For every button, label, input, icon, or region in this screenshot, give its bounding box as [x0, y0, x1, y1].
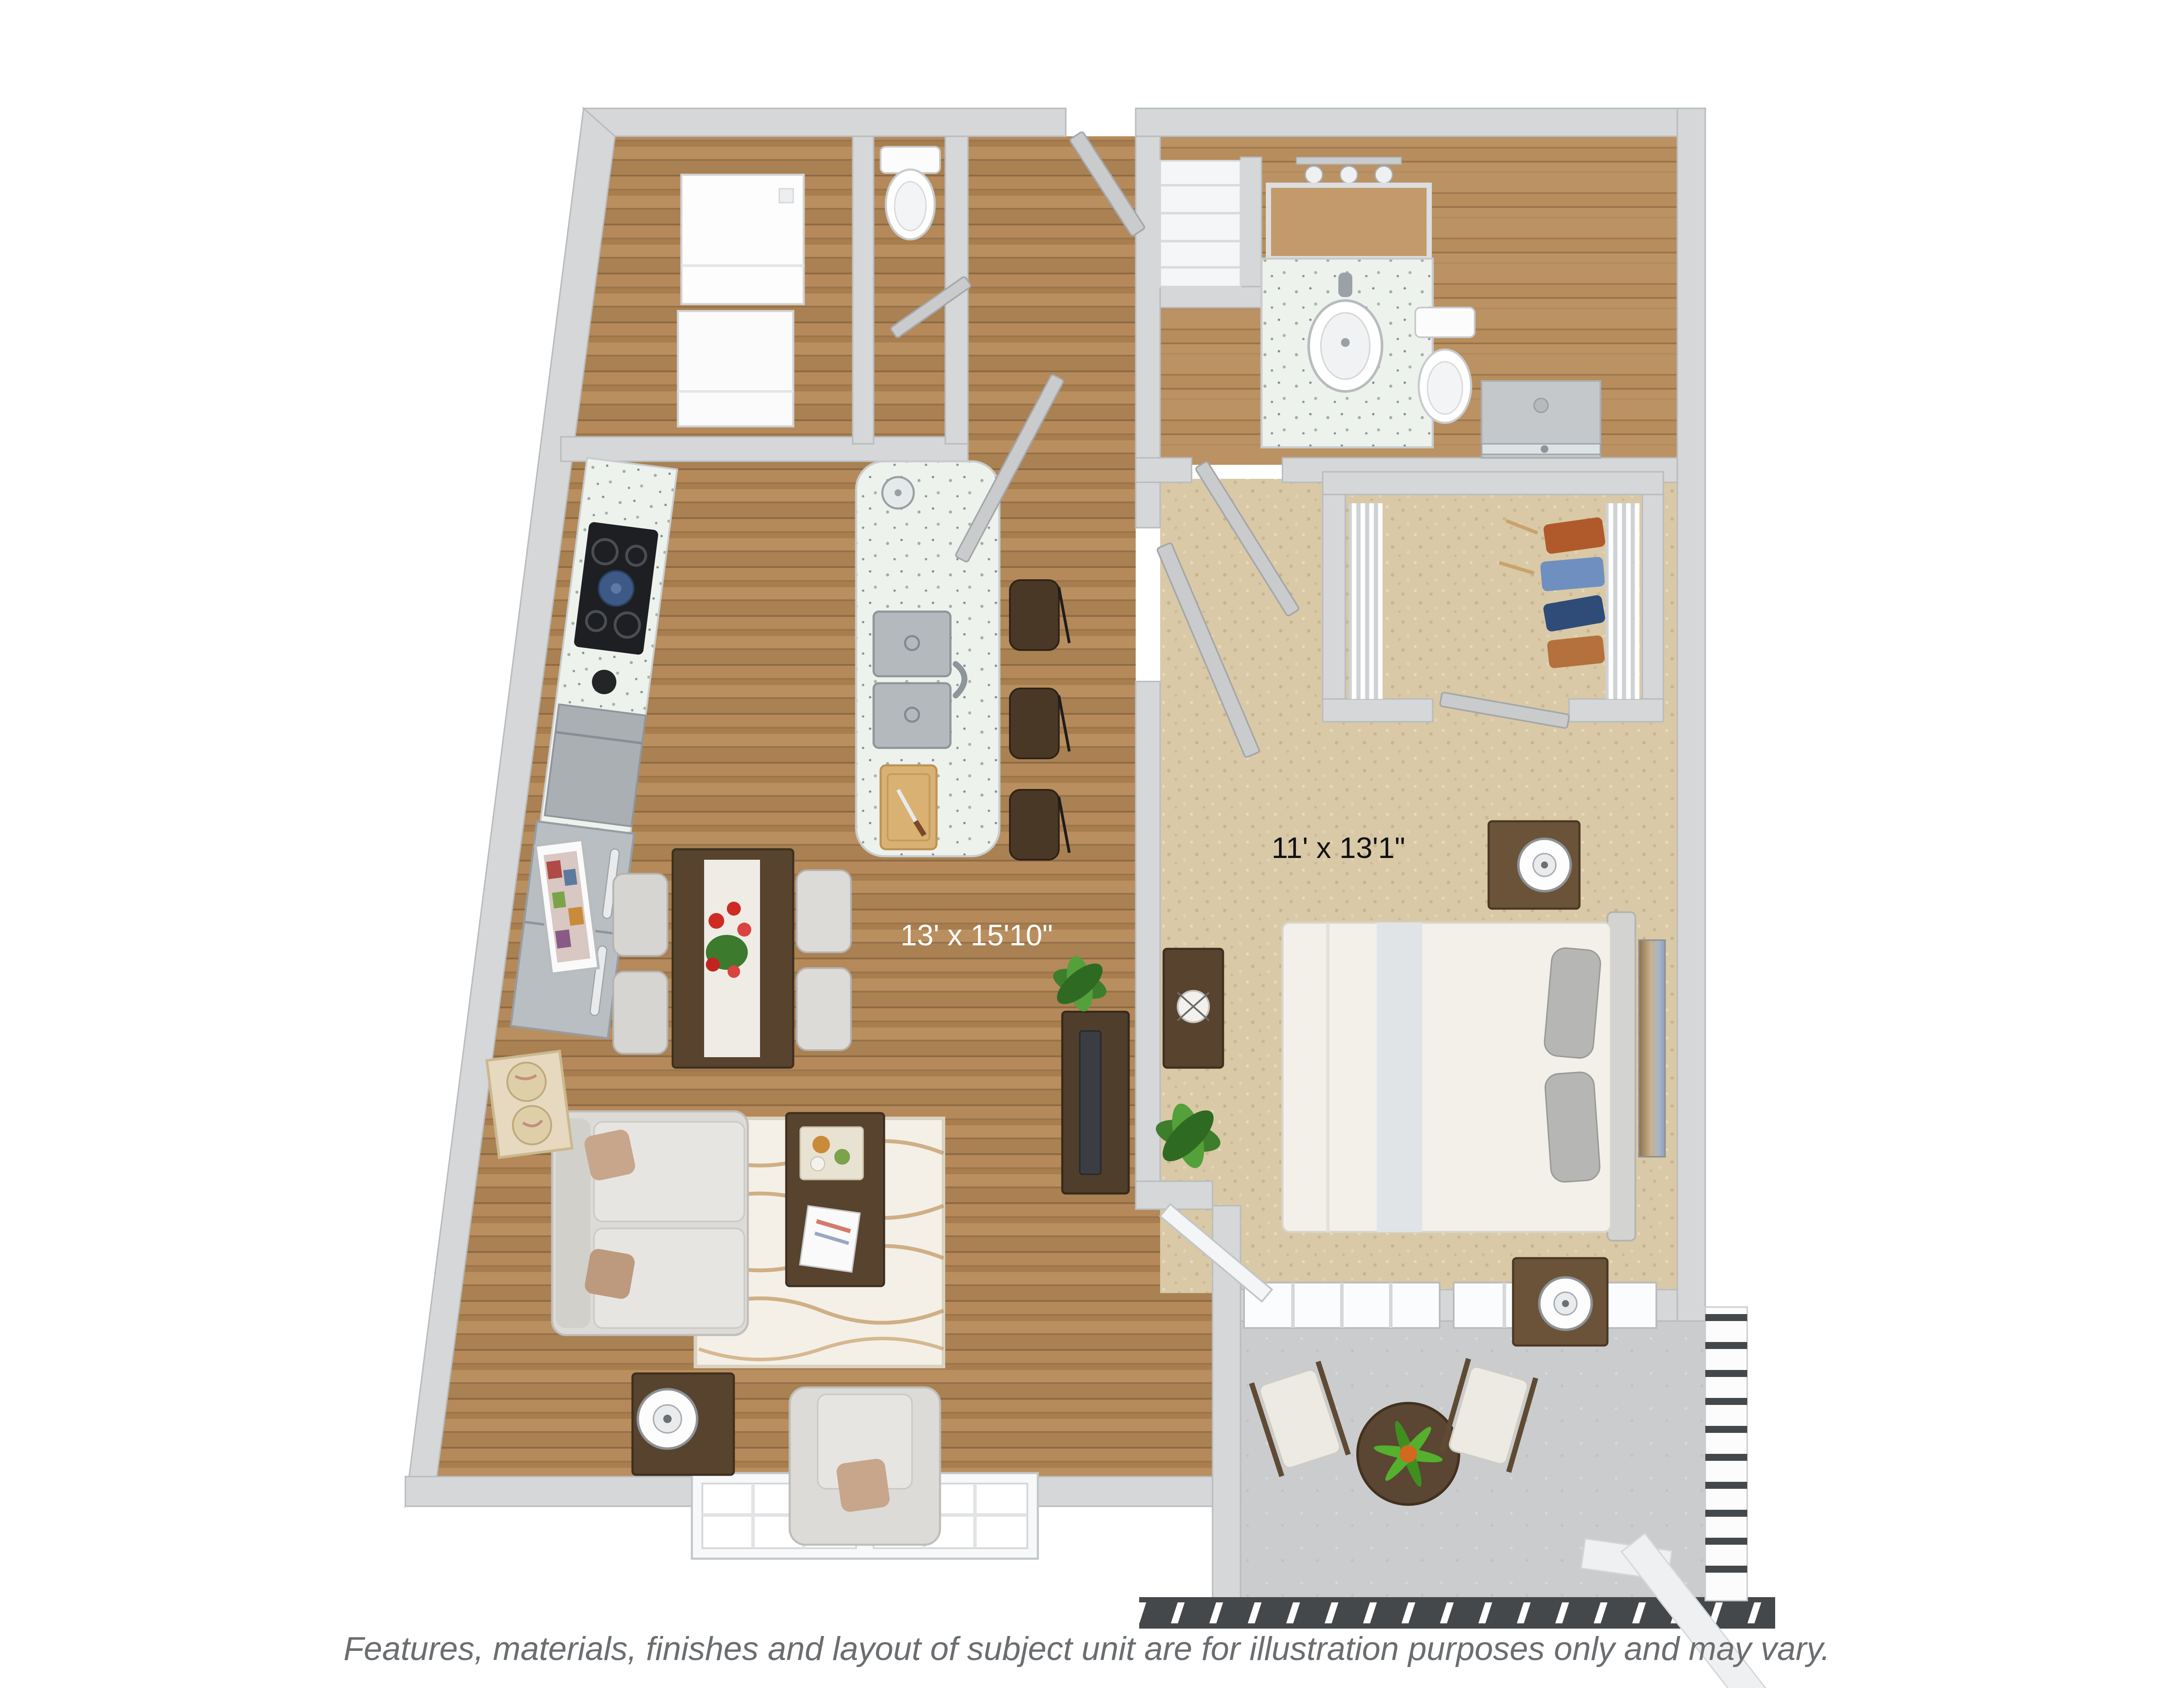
dining-chair	[797, 968, 851, 1050]
bar-stool	[1010, 580, 1059, 650]
bar-stool	[1010, 688, 1059, 758]
wall-living-balcony-stub	[1136, 1181, 1213, 1209]
tv-screen	[1080, 1031, 1101, 1174]
wall-laundry-wc-bottom	[561, 437, 968, 461]
armchair-pillow	[836, 1458, 891, 1513]
sofa	[552, 1111, 748, 1335]
dining-chair	[797, 870, 851, 952]
tv-console	[1062, 1012, 1129, 1193]
vanity-light-fixture	[1296, 157, 1401, 183]
laundry-closet	[678, 175, 804, 426]
wall-closet-left	[1323, 495, 1345, 711]
disclaimer-text: Features, materials, finishes and layout…	[343, 1630, 1830, 1667]
wall-laundry-wc-divider	[853, 136, 874, 444]
wall-closet-top	[1323, 472, 1663, 495]
dining-chair	[613, 874, 667, 956]
vanity-mirror	[1268, 185, 1429, 259]
sofa-pillow	[583, 1128, 636, 1182]
bedroom-dimension-label: 11' x 13'1"	[1272, 831, 1405, 865]
linen-shelves	[1160, 161, 1241, 287]
wall-closet-bottom-right	[1569, 699, 1663, 722]
wall-linen-bottom	[1160, 287, 1261, 308]
armchair	[790, 1387, 940, 1545]
balcony-table	[1358, 1403, 1459, 1505]
dryer-unit	[678, 311, 793, 426]
folded-sheet	[1377, 923, 1422, 1232]
wall-closet-bottom-left	[1323, 699, 1433, 722]
balcony-railing-south	[633, 1597, 1775, 1629]
wall-art-map	[487, 1051, 572, 1158]
wall-linen-east	[1241, 157, 1261, 304]
wall-bath-bottom-west	[1136, 458, 1192, 482]
outer-wall-top-right	[1136, 108, 1705, 136]
bar-stool	[1010, 790, 1059, 860]
oven	[545, 704, 646, 826]
balcony-railing-east	[1705, 1307, 1747, 1601]
bedroom-window-left	[1244, 1283, 1440, 1328]
bed-pillow	[1544, 1071, 1600, 1183]
nightstand-south	[1513, 1258, 1607, 1346]
wall-art-landscape	[1639, 940, 1665, 1157]
shower-door-handle	[1541, 445, 1548, 453]
floorplan-svg: 13' x 15'10" 11' x 13'1" Features, mater…	[0, 0, 2184, 1688]
wire-shelf-left	[1349, 503, 1382, 699]
nightstand-north	[1489, 821, 1579, 909]
bathroom-vanity	[1261, 259, 1433, 447]
floorplan-canvas: 13' x 15'10" 11' x 13'1" Features, mater…	[0, 0, 2184, 1688]
outer-wall-top-left	[584, 108, 1066, 136]
bathroom-toilet	[1415, 308, 1475, 423]
bed	[1282, 912, 1635, 1241]
wall-bedroom-west	[1136, 681, 1160, 1185]
wire-shelf-right	[1606, 503, 1639, 699]
wall-closet-right	[1642, 495, 1663, 711]
living-room-dimension-label: 13' x 15'10"	[901, 919, 1053, 952]
shower-stall	[1482, 381, 1600, 458]
bed-pillow	[1543, 947, 1601, 1059]
dining-chair	[613, 972, 667, 1054]
vanity-faucet	[1338, 273, 1352, 297]
cutting-board	[881, 765, 936, 849]
side-table-with-lamp	[632, 1373, 734, 1475]
foot-of-bed-table	[1164, 949, 1223, 1068]
outer-wall-right	[1677, 108, 1705, 1321]
serving-tray	[800, 1127, 863, 1180]
sofa-pillow	[584, 1248, 636, 1300]
coffee-table	[786, 1113, 884, 1286]
